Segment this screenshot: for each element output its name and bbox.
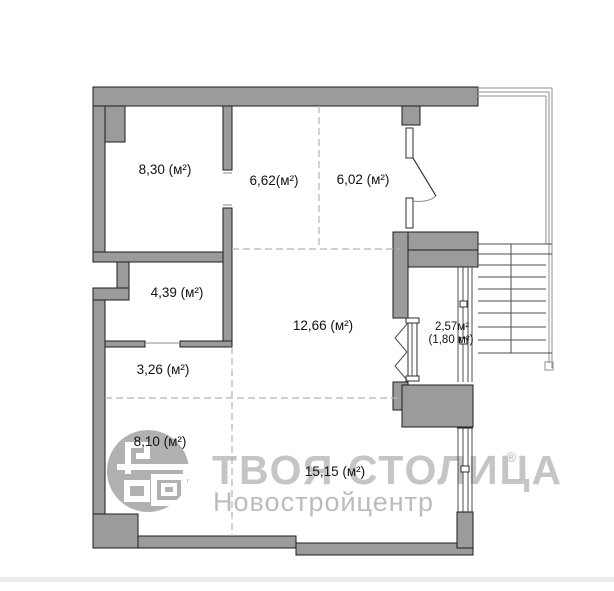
room-labels: 8,30 (м²) 6,62(м²) 6,02 (м²) 4,39 (м²) 1… [134,162,474,479]
wall-segment [138,536,296,548]
door-swing-arc [413,196,436,201]
room-area-label: 6,02 (м²) [337,172,390,187]
room-area-label: 6,62(м²) [249,173,298,188]
wall-segment [296,543,473,555]
casement-open-mark [395,324,407,352]
wall-segment [105,341,145,347]
door-jamb [406,128,413,158]
room-area-label: 12,66 (м²) [293,318,353,333]
room-area-label: 3,26 (м²) [137,362,190,377]
wall-segment [93,300,105,514]
casement-open-mark [395,352,407,380]
wall-segment [93,288,129,300]
balcony-door-sill [406,318,419,323]
door-jamb [406,198,413,228]
wall-segment [105,106,125,142]
wall-segment [180,341,232,347]
wall-segment [117,262,129,290]
balcony-area-sublabel: (1,80 м²) [429,334,474,346]
room-area-label: 4,39 (м²) [151,285,204,300]
balcony-area-label: 2,57м² [435,321,469,333]
wall-segment [408,250,478,267]
door-leaf [413,158,436,196]
wall-segment [93,514,138,548]
stair-landing [473,88,553,370]
wall-segment [402,385,473,427]
wall-segment [400,232,478,252]
wall-segment [223,106,232,170]
wall-segment [93,252,232,262]
balcony-door-sill [406,376,419,381]
footer-strip [0,577,614,582]
wall-segment [393,232,408,318]
wall-segment [402,106,420,125]
window-mullion [460,301,467,307]
wall-segment [223,208,232,347]
window-mullion [461,466,469,472]
watermark-subtitle-text: Новостройцентр [213,487,434,517]
room-area-label: 8,30 (м²) [139,162,192,177]
wall-segment [457,512,473,548]
floorplan-image: ТВОЯ СТОЛИЦА ® Новостройцентр [0,0,614,591]
wall-segment [93,106,105,252]
entry-door [406,128,436,228]
balcony-door [395,318,419,381]
wall-segment [93,87,478,106]
room-area-label: 8,10 (м²) [134,434,187,449]
room-area-label: 15,15 (м²) [305,464,365,479]
watermark-registered-mark: ® [506,449,517,465]
stairs [478,244,552,353]
